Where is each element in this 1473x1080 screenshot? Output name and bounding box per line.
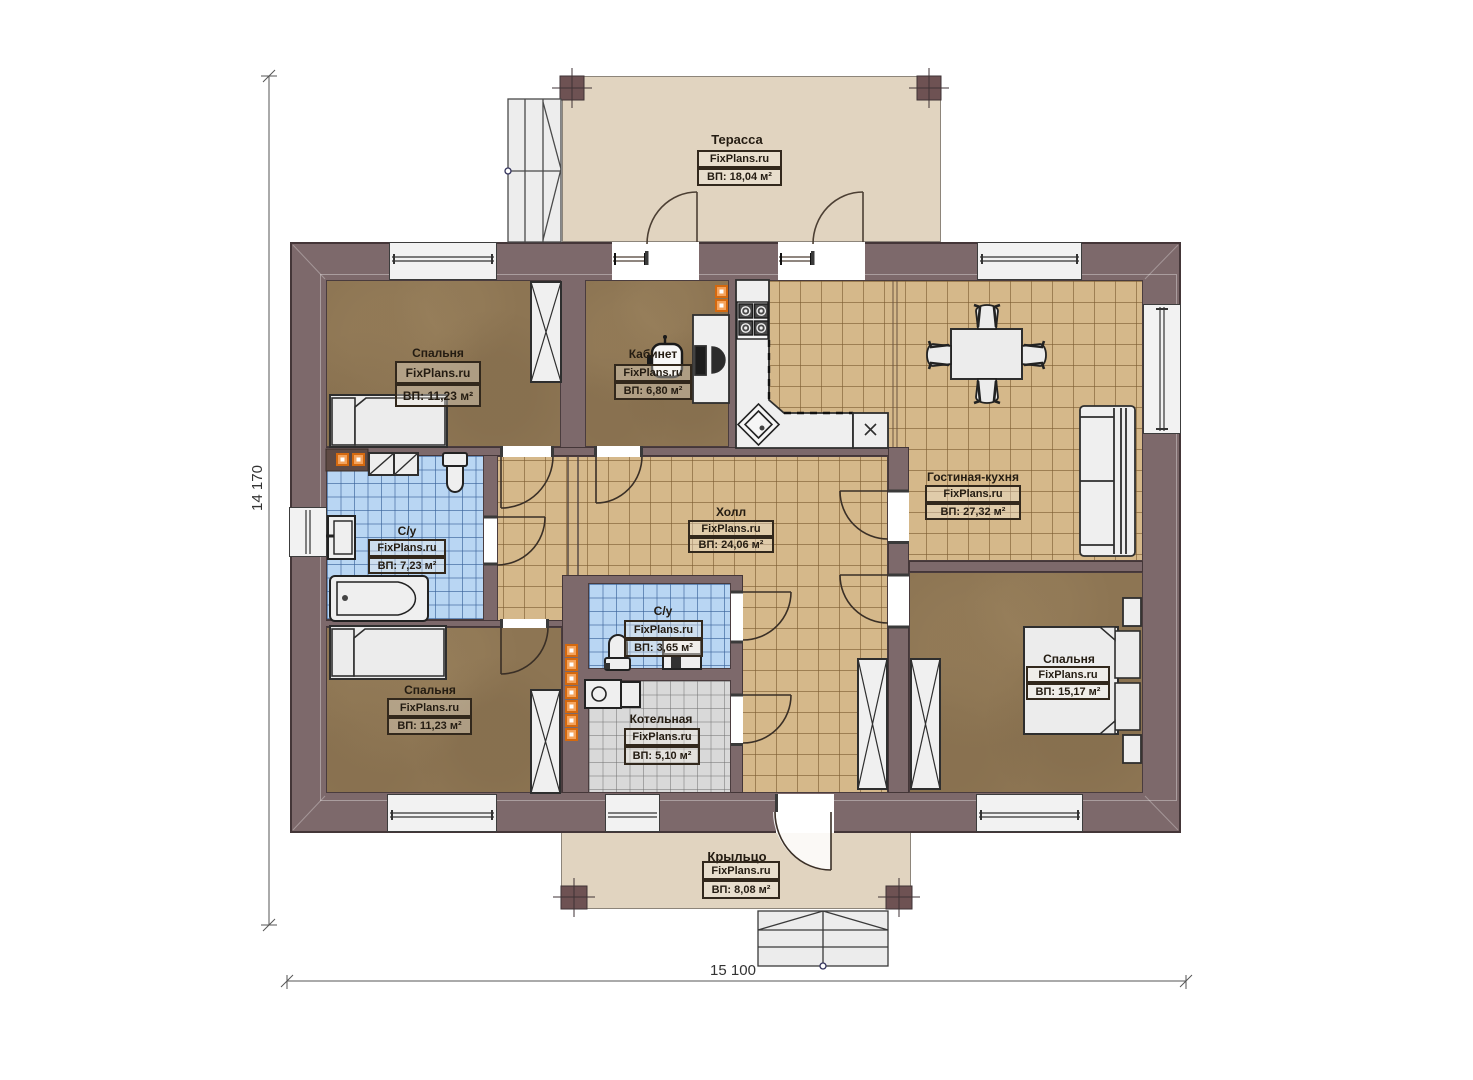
svg-text:14 170: 14 170 — [249, 465, 266, 511]
svg-text:15 100: 15 100 — [710, 962, 756, 979]
